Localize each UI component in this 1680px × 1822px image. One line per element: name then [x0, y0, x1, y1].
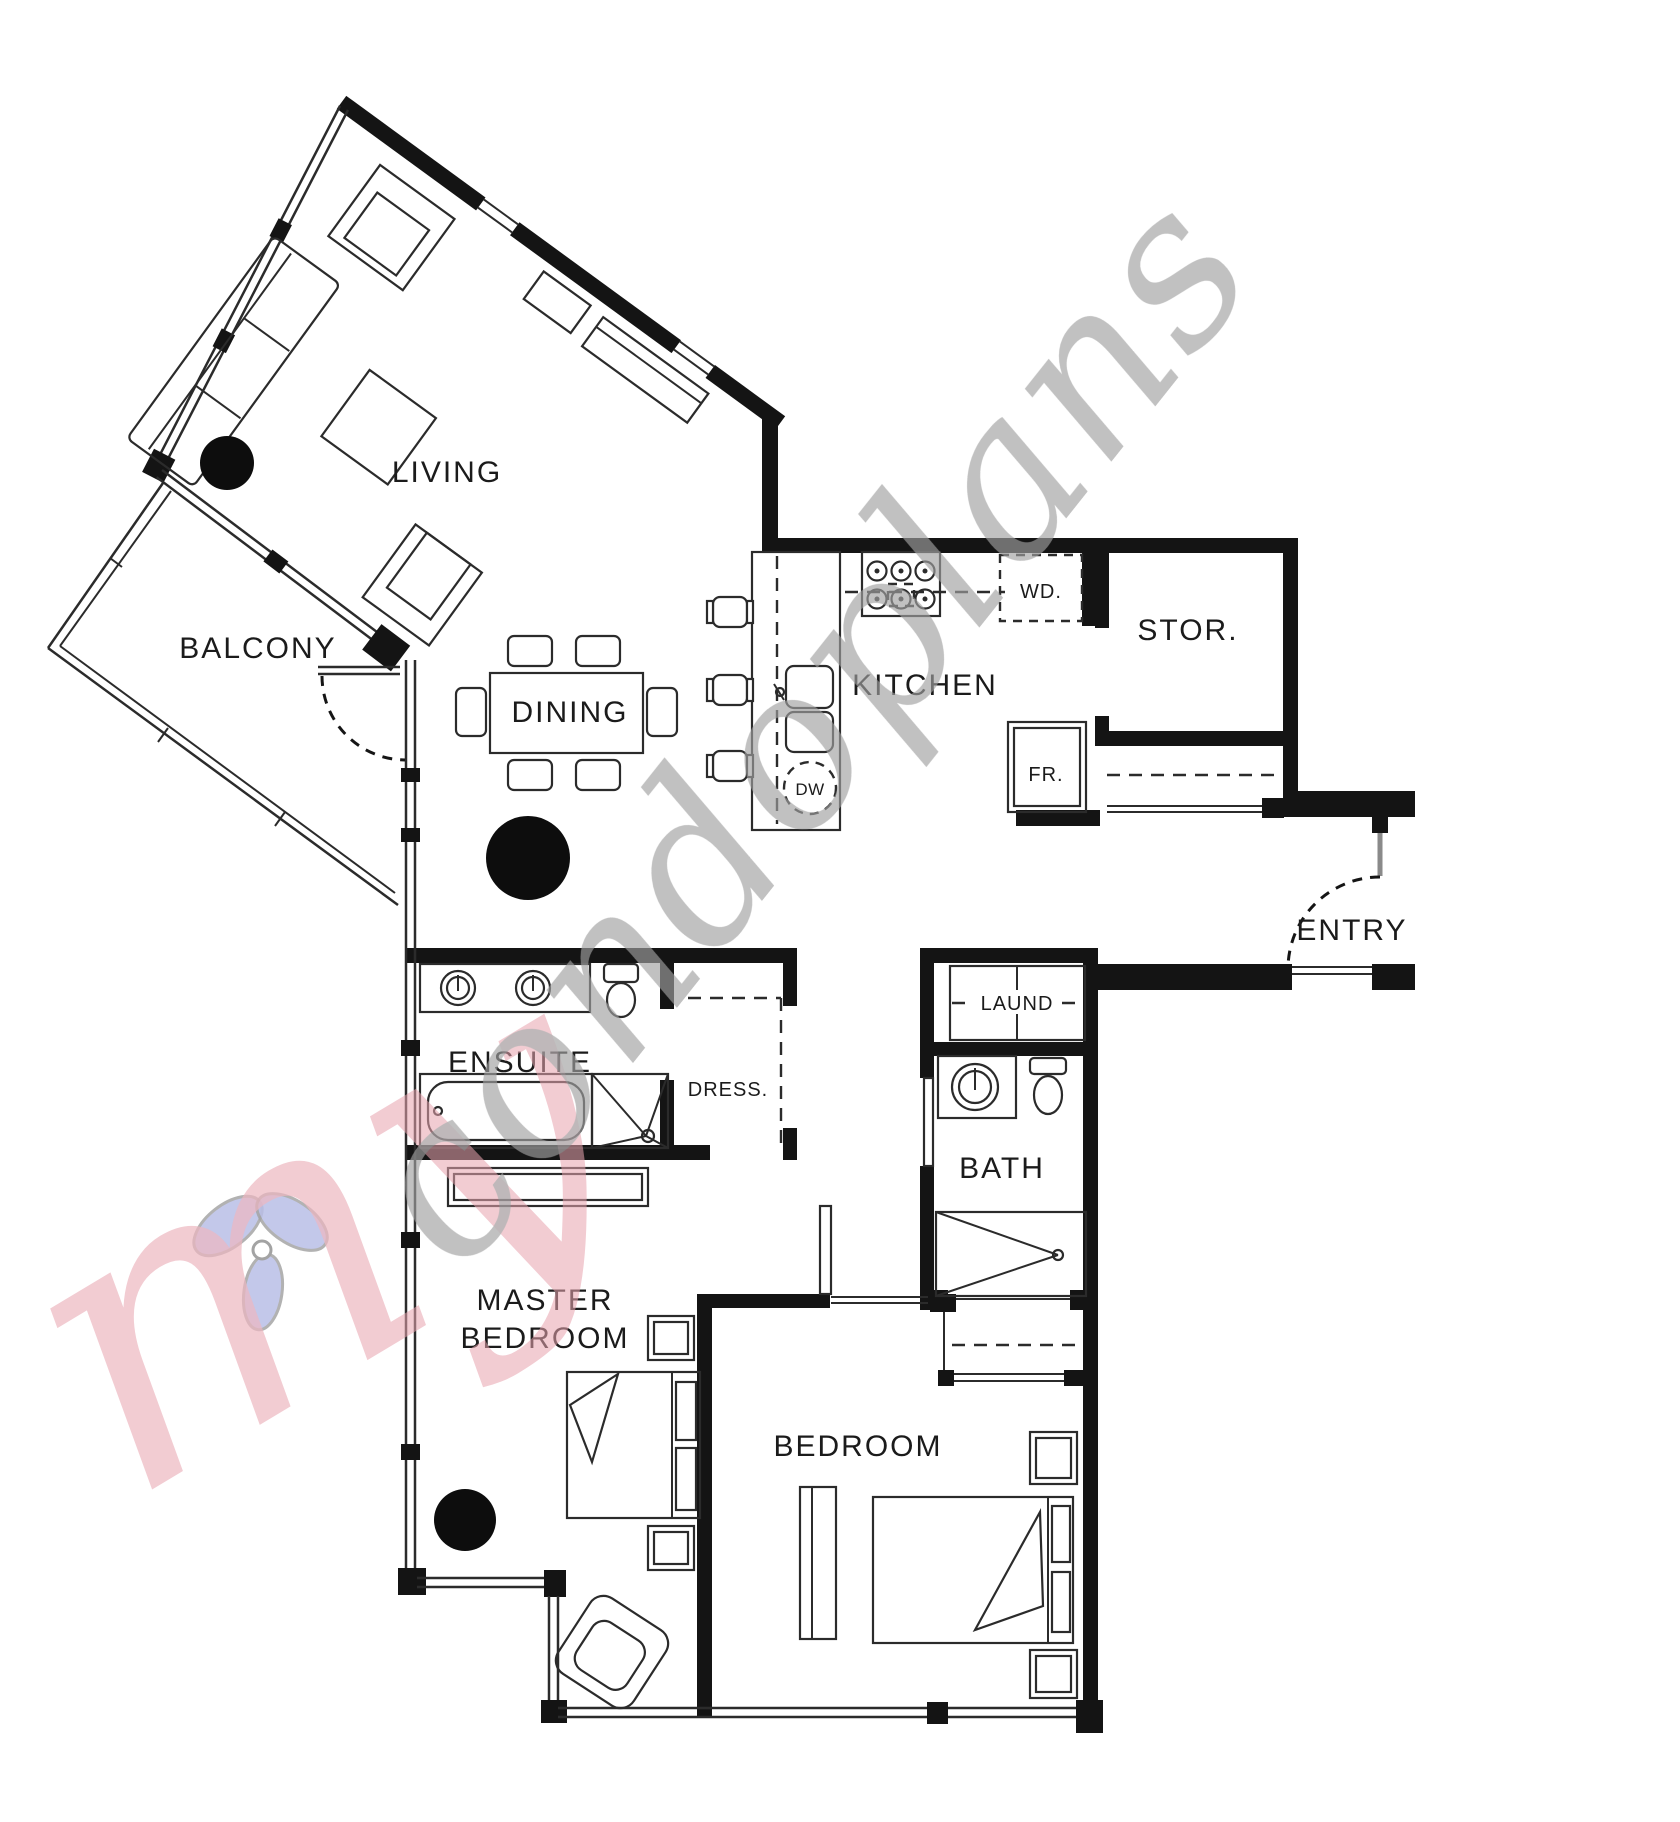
- living-furniture: [127, 131, 710, 699]
- wall-entry-bottom-right: [1372, 964, 1415, 990]
- balcony-rail-bottom: [48, 648, 398, 905]
- armchair-seat: [569, 1616, 650, 1696]
- armchair-seat: [344, 193, 429, 276]
- nightstand-inner: [1036, 1656, 1071, 1692]
- wall-entry-bottom-left: [1098, 964, 1292, 990]
- floorplan-page: LIVING BALCONY DINING KITCHEN STOR. ENTR…: [0, 0, 1680, 1822]
- label-storage: STOR.: [1137, 614, 1238, 647]
- window-mullion: [401, 768, 420, 782]
- label-bedroom: BEDROOM: [773, 1430, 942, 1463]
- watermark-condoplans-text: condoplans: [305, 146, 1304, 1310]
- nightstand-inner: [1036, 1438, 1071, 1478]
- balcony-door-corner-block: [362, 624, 410, 671]
- wall-east: [1083, 948, 1098, 1733]
- toilet-bowl: [1034, 1076, 1062, 1114]
- pillow: [676, 1448, 696, 1510]
- bedroom-closet: [938, 1312, 1083, 1386]
- label-dining: DINING: [512, 696, 629, 729]
- wall-dress-right-lower: [783, 1128, 797, 1160]
- wall-entry-top-stub: [1283, 791, 1415, 817]
- sofa-back-line: [149, 253, 291, 449]
- window-corner-block: [544, 1570, 566, 1597]
- nook-armchair: [550, 1590, 674, 1714]
- balcony-panel-tick: [275, 812, 285, 826]
- bedroom-furniture: [800, 1432, 1077, 1698]
- label-bath: BATH: [959, 1152, 1045, 1185]
- label-dressing: DRESS.: [688, 1079, 768, 1101]
- sofa-cushion-line: [195, 385, 240, 418]
- wall-laundry-bath-divider: [920, 1042, 1098, 1056]
- balcony-door-swing-arc: [322, 676, 405, 760]
- pillow: [1052, 1506, 1070, 1562]
- window-mullion: [263, 549, 288, 573]
- bedroom-door-leaf: [820, 1206, 831, 1294]
- toilet-tank: [1030, 1058, 1066, 1074]
- label-laundry: LAUND: [981, 993, 1054, 1015]
- wall-laundry-top: [920, 948, 1098, 963]
- window-corner-block: [541, 1700, 567, 1723]
- wall-bedroom-door: [712, 1294, 830, 1308]
- dining-chair: [576, 636, 620, 666]
- label-living: LIVING: [392, 456, 502, 489]
- bath-door-leaf: [924, 1078, 933, 1166]
- label-entry: ENTRY: [1296, 914, 1407, 947]
- pillow: [1052, 1572, 1070, 1632]
- closet-end-block: [1262, 798, 1284, 818]
- window-mullion: [927, 1702, 948, 1724]
- window-corner-block: [398, 1568, 426, 1595]
- bath-counter: [938, 1056, 1016, 1118]
- wall-bath-left-upper: [920, 1056, 934, 1078]
- window-line: [162, 110, 348, 470]
- floorplan-canvas: LIVING BALCONY DINING KITCHEN STOR. ENTR…: [0, 0, 1680, 1822]
- blanket-fold: [975, 1512, 1043, 1630]
- wall-living-east: [762, 412, 778, 552]
- pillow: [676, 1382, 696, 1440]
- balcony-rail-top: [48, 483, 163, 648]
- balcony-rail-top-inner: [60, 491, 171, 646]
- tub-line: [936, 1212, 1058, 1255]
- window-mullion: [213, 328, 236, 353]
- tub-line: [936, 1255, 1058, 1296]
- wall-storage-bottom: [1105, 731, 1283, 746]
- nightstand-inner: [654, 1532, 688, 1564]
- closet-end-block: [1064, 1370, 1083, 1386]
- dining-chair: [456, 688, 486, 736]
- stool-arm: [707, 601, 713, 623]
- closet-end-block: [938, 1370, 954, 1386]
- sofa-cushion-line: [244, 318, 289, 351]
- balcony-railing: [48, 483, 398, 905]
- wall-bath-left-lower: [920, 1166, 934, 1298]
- entry-door-jamb: [1372, 817, 1388, 833]
- balcony-rail-bottom-inner: [60, 646, 395, 893]
- bedroom-bed: [873, 1497, 1073, 1643]
- wall-dress-right-upper: [783, 948, 797, 1006]
- watermark: my condoplans: [0, 146, 1303, 1585]
- blanket-fold: [570, 1374, 618, 1462]
- column-master: [434, 1489, 496, 1551]
- wall-storage-right: [1283, 538, 1298, 814]
- window-corner-block: [1076, 1700, 1103, 1733]
- bedroom-dresser: [800, 1487, 836, 1639]
- wall-laundry-left: [920, 948, 934, 1046]
- wall-storage-left-lower: [1095, 716, 1109, 746]
- dining-chair: [508, 636, 552, 666]
- column-living: [200, 436, 254, 490]
- nightstand-inner: [654, 1322, 688, 1354]
- window-wall-living-west: [142, 102, 354, 483]
- entry-closet: [1107, 775, 1284, 818]
- window-mullion: [401, 828, 420, 842]
- label-balcony: BALCONY: [179, 632, 336, 665]
- label-fridge: FR.: [1028, 764, 1063, 786]
- dining-chair: [508, 760, 552, 790]
- armchair-outline: [550, 1590, 674, 1714]
